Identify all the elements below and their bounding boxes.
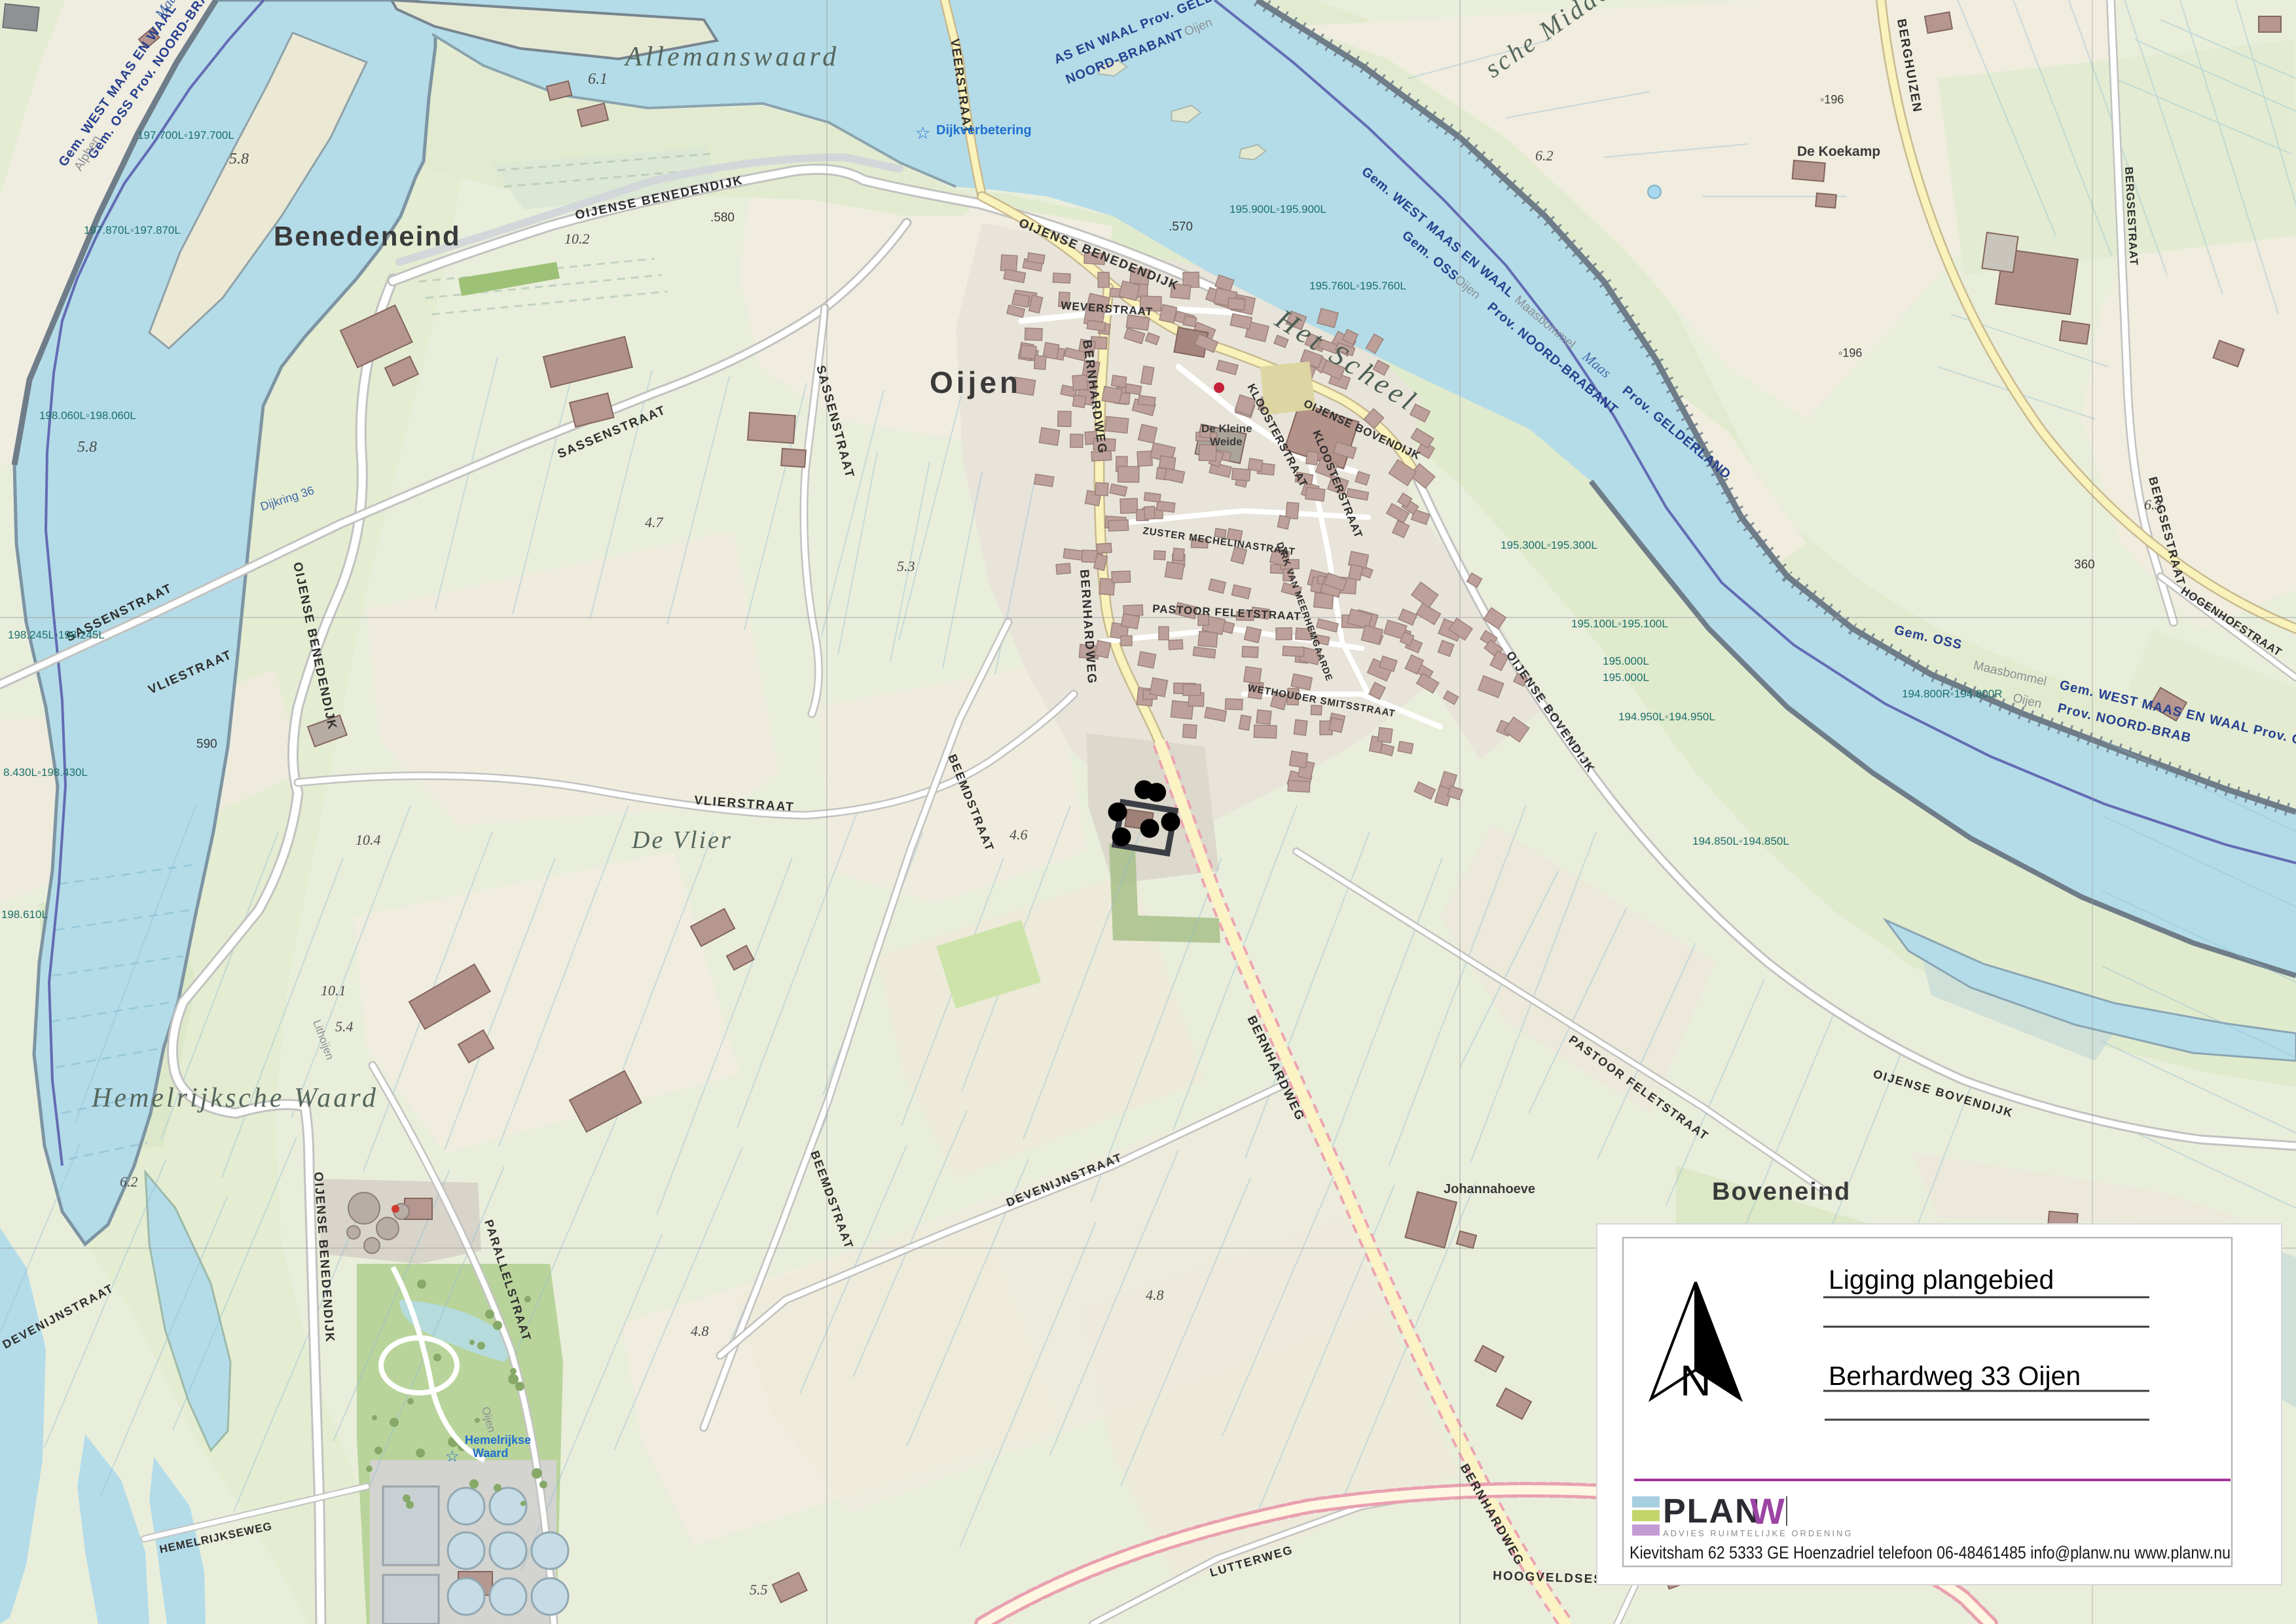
svg-text:Allemanswaard: Allemanswaard — [623, 42, 839, 72]
svg-text:4.8: 4.8 — [691, 1323, 709, 1339]
svg-text:Boveneind: Boveneind — [1712, 1178, 1851, 1206]
svg-text:☆: ☆ — [915, 123, 930, 143]
svg-text:195.760L◦195.760L: 195.760L◦195.760L — [1309, 280, 1406, 292]
svg-text:5.3: 5.3 — [897, 558, 915, 574]
svg-text:4.7: 4.7 — [645, 514, 664, 530]
svg-text:Dijkverbetering: Dijkverbetering — [936, 123, 1032, 138]
svg-text:197.700L◦197.700L: 197.700L◦197.700L — [137, 129, 234, 141]
svg-text:.580: .580 — [710, 211, 735, 225]
svg-text:☆: ☆ — [445, 1448, 460, 1466]
svg-text:195.000L: 195.000L — [1603, 655, 1649, 667]
svg-text:Benedeneind: Benedeneind — [274, 221, 461, 251]
svg-text:Weide: Weide — [1210, 435, 1243, 448]
svg-text:4.8: 4.8 — [1146, 1287, 1164, 1303]
svg-text:◦196: ◦196 — [1838, 346, 1862, 360]
svg-text:195.900L◦195.900L: 195.900L◦195.900L — [1230, 203, 1326, 215]
svg-text:5.8: 5.8 — [229, 151, 249, 168]
svg-text:Ligging plangebied: Ligging plangebied — [1829, 1264, 2054, 1295]
svg-text:N: N — [1680, 1356, 1711, 1405]
svg-text:198.060L◦198.060L: 198.060L◦198.060L — [39, 409, 136, 422]
svg-text:197.870L◦197.870L: 197.870L◦197.870L — [84, 224, 181, 236]
svg-text:6.3: 6.3 — [2144, 496, 2162, 513]
svg-text:4.6: 4.6 — [1010, 826, 1028, 843]
svg-text:Berhardweg 33 Oijen: Berhardweg 33 Oijen — [1829, 1361, 2081, 1391]
svg-text:360: 360 — [2074, 558, 2095, 572]
svg-text:◦196: ◦196 — [1820, 93, 1844, 106]
svg-text:6.1: 6.1 — [588, 71, 608, 88]
svg-text:8.430L◦198.430L: 8.430L◦198.430L — [3, 766, 88, 779]
svg-text:195.000L: 195.000L — [1603, 671, 1649, 684]
svg-text:194.800R◦194.800R: 194.800R◦194.800R — [1902, 688, 2002, 700]
svg-text:De Vlier: De Vlier — [631, 826, 733, 854]
svg-text:PLAN: PLAN — [1663, 1492, 1761, 1530]
svg-text:195.100L◦195.100L: 195.100L◦195.100L — [1571, 618, 1668, 630]
svg-text:5.5: 5.5 — [750, 1581, 768, 1598]
svg-text:Waard: Waard — [473, 1447, 508, 1460]
svg-text:Kievitsham 62 5333 GE Hoenzadr: Kievitsham 62 5333 GE Hoenzadriel telefo… — [1630, 1543, 2231, 1562]
svg-text:194.950L◦194.950L: 194.950L◦194.950L — [1618, 710, 1715, 723]
svg-text:De Koekamp: De Koekamp — [1797, 144, 1880, 159]
svg-text:10.2: 10.2 — [564, 231, 590, 247]
svg-text:5.8: 5.8 — [77, 439, 97, 456]
svg-text:De Kleine: De Kleine — [1201, 422, 1252, 435]
svg-text:Oijen: Oijen — [930, 365, 1021, 399]
svg-text:Hemelrijkse: Hemelrijkse — [465, 1433, 531, 1447]
svg-text:.570: .570 — [1169, 220, 1193, 234]
svg-text:194.850L◦194.850L: 194.850L◦194.850L — [1692, 835, 1789, 847]
svg-text:W: W — [1750, 1490, 1785, 1532]
svg-text:195.300L◦195.300L: 195.300L◦195.300L — [1501, 539, 1597, 551]
svg-text:10.1: 10.1 — [321, 982, 346, 999]
svg-text:198.610L: 198.610L — [1, 908, 48, 921]
svg-text:5.4: 5.4 — [335, 1018, 354, 1035]
svg-text:Johannahoeve: Johannahoeve — [1444, 1182, 1535, 1196]
svg-text:Hemelrijksche Waard: Hemelrijksche Waard — [91, 1083, 378, 1113]
svg-text:6.2: 6.2 — [120, 1173, 138, 1190]
svg-text:590: 590 — [196, 737, 217, 751]
svg-text:10.4: 10.4 — [355, 832, 381, 848]
svg-text:ADVIES RUIMTELIJKE ORDENING: ADVIES RUIMTELIJKE ORDENING — [1663, 1528, 1853, 1538]
svg-text:198.245L◦198.245L: 198.245L◦198.245L — [8, 629, 105, 641]
svg-text:6.2: 6.2 — [1535, 147, 1554, 164]
